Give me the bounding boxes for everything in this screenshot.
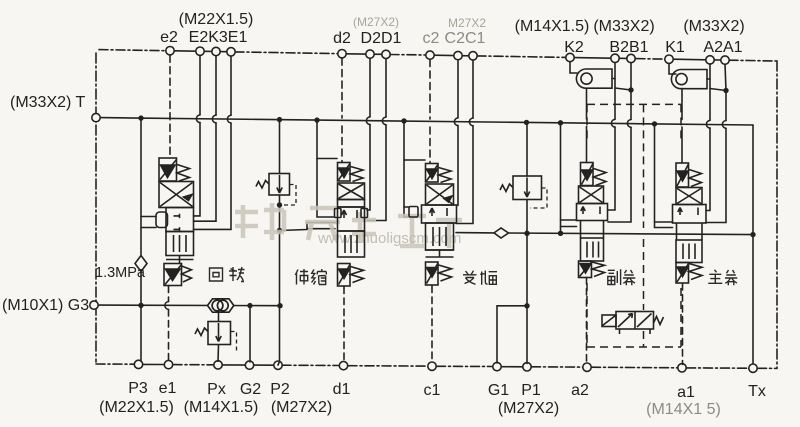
svg-text:e2: e2 — [160, 29, 178, 46]
svg-text:(M27X2): (M27X2) — [353, 15, 399, 29]
svg-text:c2: c2 — [423, 30, 440, 47]
svg-text:A2A1: A2A1 — [703, 39, 742, 56]
svg-text:(M27X2): (M27X2) — [271, 399, 332, 416]
svg-text:(M33X2) T: (M33X2) T — [10, 94, 86, 111]
svg-text:P3: P3 — [128, 380, 148, 397]
svg-text:c1: c1 — [424, 382, 441, 399]
svg-text:(M14X1.5): (M14X1.5) — [515, 18, 590, 35]
svg-text:d2: d2 — [333, 30, 351, 47]
svg-text:(M10X1) G3: (M10X1) G3 — [2, 297, 89, 314]
svg-text:E2K3E1: E2K3E1 — [189, 29, 248, 46]
svg-text:B2B1: B2B1 — [609, 39, 648, 56]
svg-text:d1: d1 — [333, 381, 351, 398]
svg-text:M27X2: M27X2 — [448, 16, 486, 30]
svg-text:(M14X1.5): (M14X1.5) — [184, 399, 259, 416]
svg-text:1.3MPa: 1.3MPa — [95, 265, 146, 281]
svg-text:P2: P2 — [270, 381, 290, 398]
svg-text:K2: K2 — [564, 39, 584, 56]
svg-text:D2D1: D2D1 — [361, 30, 402, 47]
svg-text:e1: e1 — [159, 380, 177, 397]
svg-text:Tx: Tx — [748, 383, 766, 400]
svg-text:(M22X1.5): (M22X1.5) — [179, 11, 254, 28]
svg-text:a1: a1 — [677, 384, 695, 401]
svg-text:K1: K1 — [665, 39, 685, 56]
svg-text:P1: P1 — [521, 382, 541, 399]
svg-text:a2: a2 — [571, 382, 589, 399]
svg-text:G1: G1 — [488, 382, 509, 399]
svg-text:(M33X2): (M33X2) — [593, 18, 654, 35]
svg-text:(M33X2): (M33X2) — [683, 18, 744, 35]
svg-text:G2: G2 — [240, 381, 261, 398]
svg-text:C2C1: C2C1 — [445, 30, 486, 47]
svg-text:Px: Px — [207, 381, 226, 398]
svg-text:(M14X1 5): (M14X1 5) — [646, 401, 721, 418]
svg-text:(M22X1.5): (M22X1.5) — [99, 399, 174, 416]
svg-text:(M27X2): (M27X2) — [498, 400, 559, 417]
